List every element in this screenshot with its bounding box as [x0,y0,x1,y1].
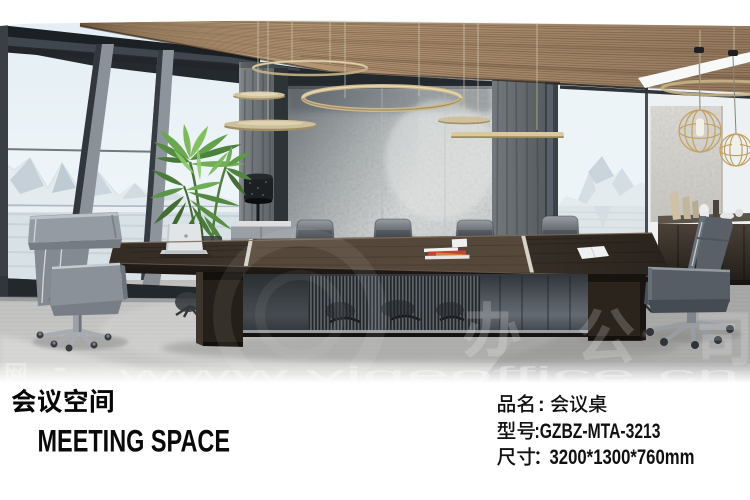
svg-text::: : [538,394,545,416]
svg-text:3200*1300*760mm: 3200*1300*760mm [550,445,695,469]
svg-text:MEETING SPACE: MEETING SPACE [38,423,231,459]
svg-text::GZBZ-MTA-3213: :GZBZ-MTA-3213 [535,419,661,443]
